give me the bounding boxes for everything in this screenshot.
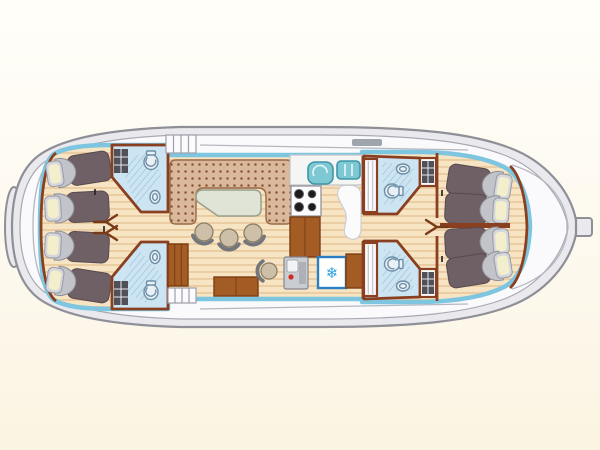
toilet-icon [144, 281, 158, 300]
sink-drainer [337, 161, 360, 179]
bed-divider [440, 223, 510, 228]
stool [219, 229, 239, 250]
snowflake-icon: ❄ [326, 264, 339, 282]
washbasin-icon [397, 164, 410, 174]
toilet-icon [385, 184, 404, 198]
console-indicator [288, 274, 293, 279]
wardrobe [364, 159, 377, 212]
washbasin-icon [397, 281, 410, 291]
burner [308, 190, 316, 198]
galley-unit [346, 254, 363, 288]
bed [44, 191, 109, 224]
boat-floor-plan: Canal boat deck floor plan — 8 berths, 4… [0, 0, 600, 450]
burner [295, 203, 304, 212]
bed [44, 230, 109, 263]
toilet-icon [144, 151, 158, 170]
sliding-hatch-rail [352, 139, 382, 146]
sideboard [168, 244, 188, 286]
toilet-icon [385, 257, 404, 271]
washbasin-icon [150, 191, 160, 204]
washbasin-icon [150, 251, 160, 264]
deck-steps-starboard [168, 288, 196, 303]
burner [308, 203, 316, 211]
wardrobe [364, 243, 377, 296]
deck-steps-port [166, 135, 196, 153]
bed [444, 193, 509, 226]
console-panel [287, 260, 298, 272]
burner [295, 190, 304, 199]
